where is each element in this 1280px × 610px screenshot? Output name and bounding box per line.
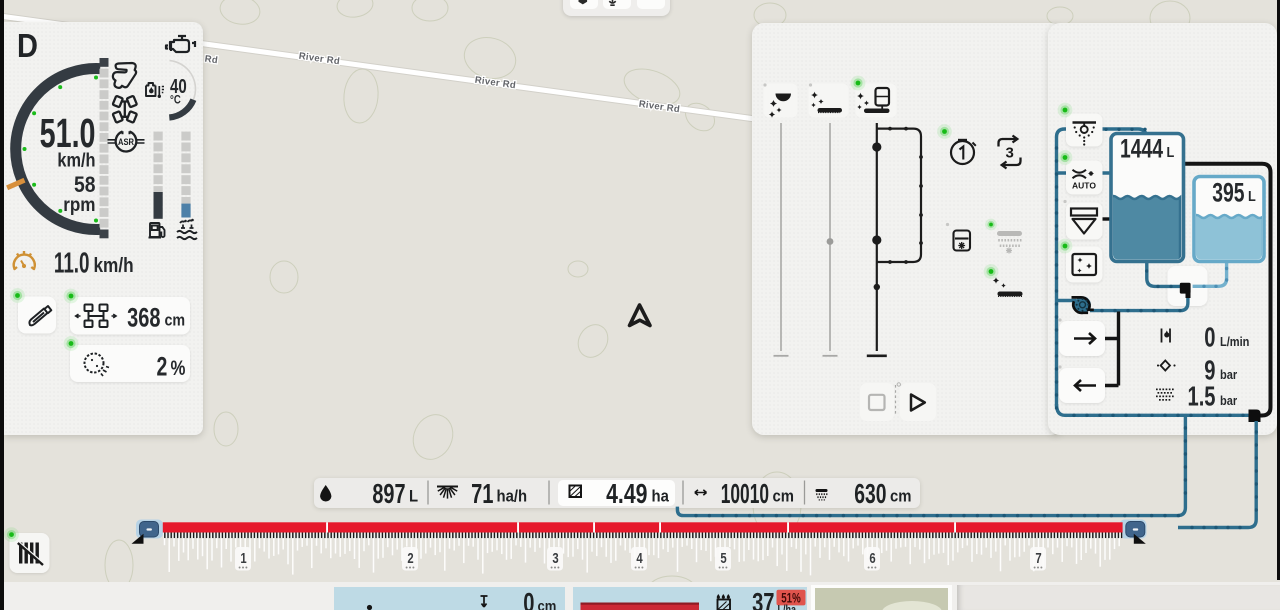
svg-text:6: 6 xyxy=(869,550,875,567)
svg-text:cm: cm xyxy=(773,488,794,506)
svg-text:897: 897 xyxy=(372,479,405,510)
svg-text:2: 2 xyxy=(156,351,167,381)
svg-text:ha/h: ha/h xyxy=(497,488,528,506)
svg-text:71: 71 xyxy=(471,479,493,510)
svg-text:ASR: ASR xyxy=(118,136,135,147)
svg-text:L: L xyxy=(409,488,418,506)
svg-text:4.49: 4.49 xyxy=(606,478,647,510)
svg-text:L: L xyxy=(1167,143,1175,160)
svg-text:km/h: km/h xyxy=(57,149,95,170)
svg-text:bar: bar xyxy=(1220,393,1237,408)
svg-text:4: 4 xyxy=(636,550,643,567)
svg-text:7: 7 xyxy=(1035,550,1041,567)
svg-text:0: 0 xyxy=(523,588,534,610)
svg-text:%: % xyxy=(171,357,186,380)
svg-text:bar: bar xyxy=(1220,367,1237,382)
svg-text:cm: cm xyxy=(165,311,186,329)
svg-text:1.5: 1.5 xyxy=(1187,381,1215,412)
svg-text:395: 395 xyxy=(1212,178,1244,208)
svg-text:rpm: rpm xyxy=(63,194,95,215)
svg-text:0: 0 xyxy=(1204,322,1215,353)
svg-text:L/min: L/min xyxy=(1220,334,1249,349)
svg-text:3: 3 xyxy=(1006,145,1014,162)
svg-text:5: 5 xyxy=(720,550,726,567)
svg-text:630: 630 xyxy=(854,479,886,510)
svg-text:2: 2 xyxy=(407,550,413,567)
svg-text:km/h: km/h xyxy=(94,254,134,277)
svg-text:10010: 10010 xyxy=(721,478,769,509)
svg-text:1444: 1444 xyxy=(1120,134,1163,164)
svg-text:cm: cm xyxy=(538,598,557,610)
svg-text:3: 3 xyxy=(552,550,558,567)
svg-text:L: L xyxy=(1248,187,1256,204)
svg-text:37: 37 xyxy=(752,588,774,610)
svg-text:ha: ha xyxy=(652,488,670,506)
svg-text:11.0: 11.0 xyxy=(54,248,90,280)
svg-text:368: 368 xyxy=(127,303,160,334)
svg-text:cm: cm xyxy=(890,488,911,506)
svg-text:L/ha: L/ha xyxy=(778,603,797,610)
svg-text:°C: °C xyxy=(170,94,181,107)
svg-text:AUTO: AUTO xyxy=(1072,181,1096,191)
svg-text:D: D xyxy=(17,27,38,64)
svg-text:1: 1 xyxy=(240,550,246,567)
